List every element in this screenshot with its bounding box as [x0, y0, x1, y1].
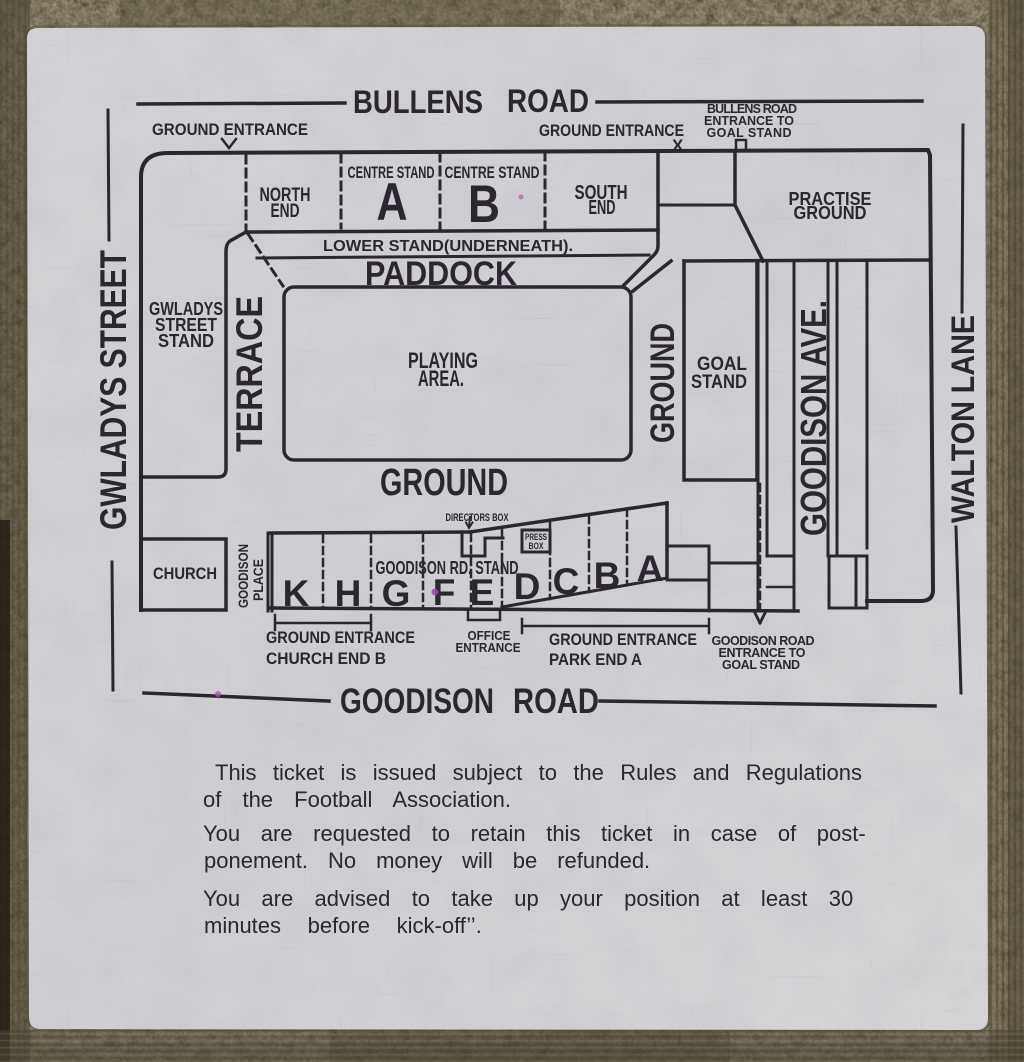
svg-text:GROUND: GROUND [794, 203, 867, 223]
svg-text:STAND: STAND [691, 372, 747, 393]
svg-text:PARK END A: PARK END A [549, 651, 642, 669]
svg-text:DIRECTORS BOX: DIRECTORS BOX [446, 512, 509, 524]
svg-text:PADDOCK: PADDOCK [365, 255, 517, 293]
svg-text:PLACE: PLACE [250, 559, 266, 601]
svg-text:BULLENS: BULLENS [353, 84, 483, 120]
svg-text:GROUND ENTRANCE: GROUND ENTRANCE [266, 629, 415, 647]
svg-text:WALTON LANE: WALTON LANE [945, 315, 981, 523]
svg-text:B: B [594, 555, 621, 596]
svg-text:GROUND ENTRANCE: GROUND ENTRANCE [539, 122, 684, 140]
svg-text:B: B [468, 175, 500, 234]
svg-text:ponement. No money will be ref: ponement. No money will be refunded. [204, 848, 650, 873]
svg-text:ROAD: ROAD [513, 682, 599, 721]
svg-text:minutes before kick-off’’.: minutes before kick-off’’. [204, 913, 482, 938]
svg-text:GOAL STAND: GOAL STAND [722, 658, 800, 672]
svg-text:CHURCH END B: CHURCH END B [266, 650, 386, 668]
svg-text:GOAL STAND: GOAL STAND [707, 126, 792, 140]
svg-text:GROUND: GROUND [644, 323, 682, 443]
svg-text:You are advised to take up you: You are advised to take up your position… [203, 886, 853, 911]
svg-text:END: END [271, 201, 300, 222]
svg-text:CHURCH: CHURCH [153, 564, 217, 583]
svg-text:BOX: BOX [529, 541, 544, 552]
svg-text:GOODISON: GOODISON [340, 682, 494, 721]
svg-text:A: A [377, 173, 408, 232]
svg-text:G: G [382, 573, 411, 614]
svg-text:D: D [514, 566, 541, 607]
svg-text:X: X [672, 136, 684, 155]
svg-text:GROUND: GROUND [380, 462, 508, 504]
svg-text:AREA.: AREA. [418, 366, 464, 391]
svg-text:STAND: STAND [158, 331, 214, 351]
svg-text:of the Football Association.: of the Football Association. [203, 787, 511, 812]
svg-text:H: H [335, 573, 362, 614]
svg-text:You are requested to retain th: You are requested to retain this ticket … [203, 821, 866, 846]
svg-text:A: A [637, 548, 664, 589]
svg-text:GWLADYS STREET: GWLADYS STREET [93, 250, 134, 530]
svg-text:This ticket is issued subject: This ticket is issued subject to the Rul… [215, 760, 862, 785]
svg-text:GOODISON AVE.: GOODISON AVE. [793, 300, 834, 536]
svg-text:E: E [470, 572, 495, 613]
svg-text:ROAD: ROAD [507, 83, 589, 119]
svg-text:END: END [589, 197, 616, 219]
svg-text:ENTRANCE: ENTRANCE [456, 640, 521, 655]
svg-text:C: C [553, 561, 580, 602]
svg-text:GOODISON: GOODISON [235, 544, 251, 608]
svg-text:LOWER STAND(UNDERNEATH).: LOWER STAND(UNDERNEATH). [323, 238, 573, 255]
svg-text:GROUND ENTRANCE: GROUND ENTRANCE [152, 121, 308, 139]
svg-text:GROUND ENTRANCE: GROUND ENTRANCE [549, 631, 697, 649]
svg-text:K: K [283, 573, 310, 614]
svg-text:TERRACE: TERRACE [229, 296, 270, 452]
